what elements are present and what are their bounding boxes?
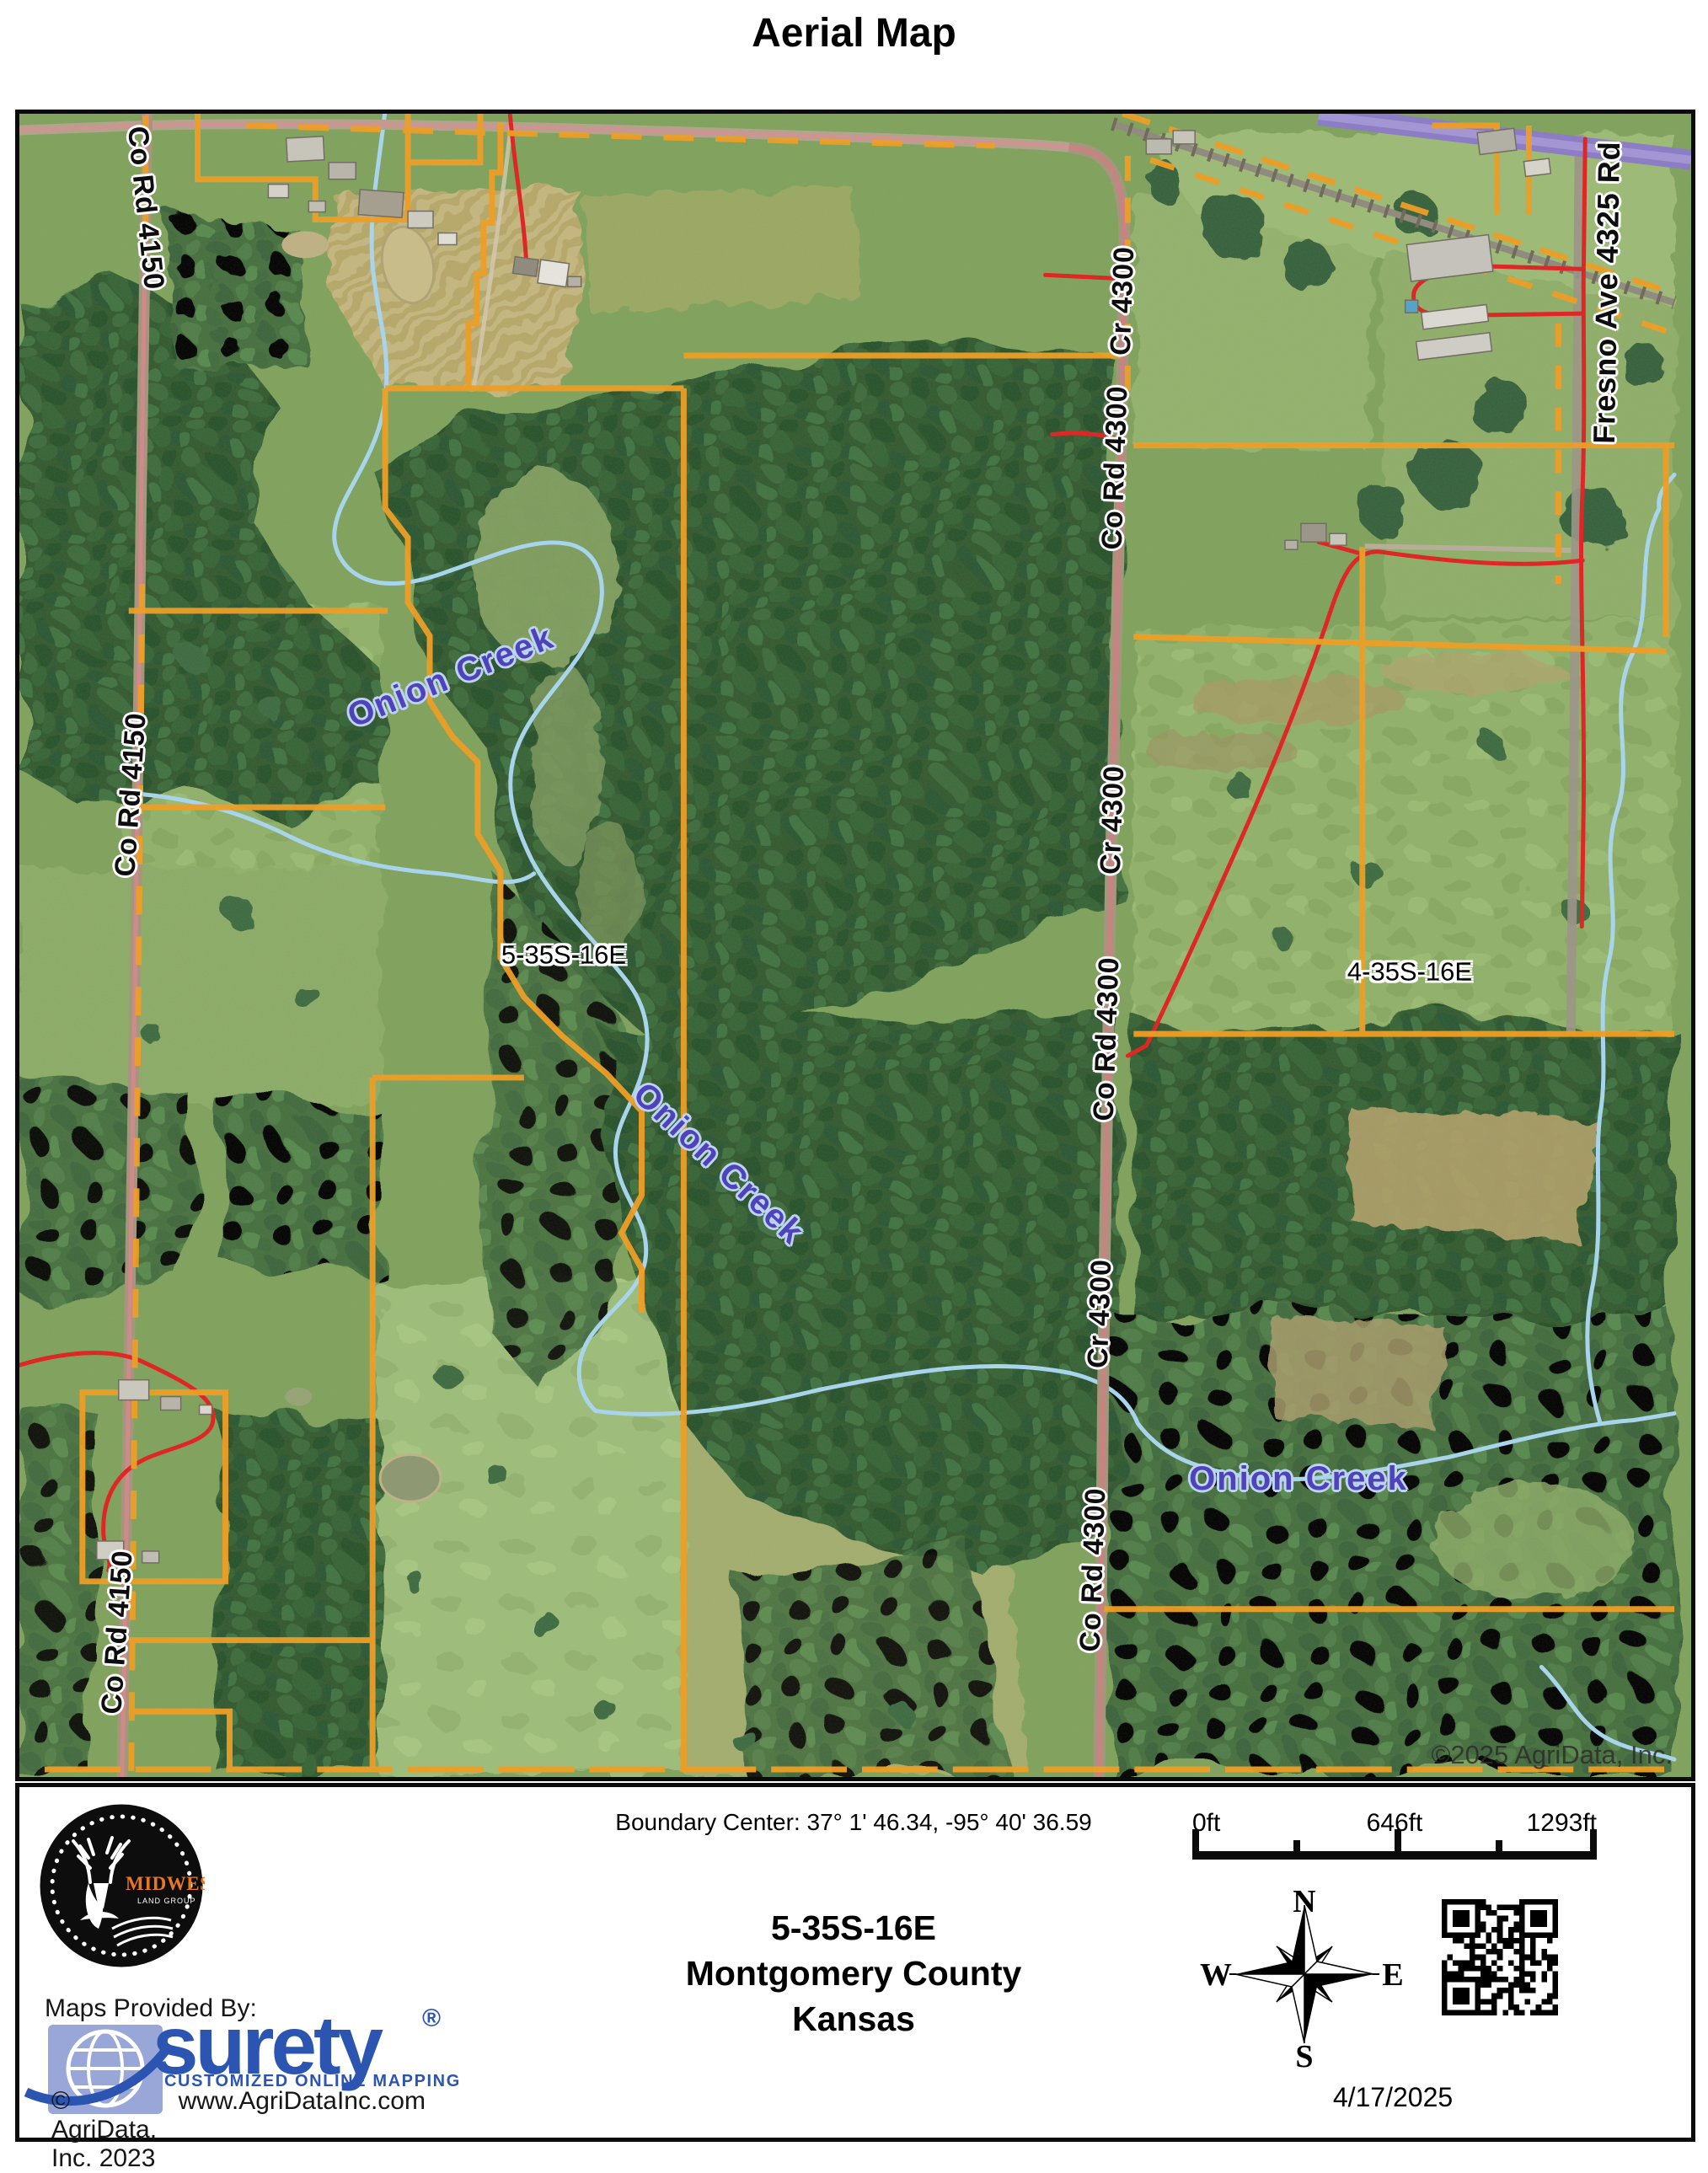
road-label-cr-4300-bottom: Cr 4300 [1084, 1259, 1116, 1369]
scale-tick [1192, 1829, 1199, 1851]
page-title: Aerial Map [0, 10, 1708, 56]
midwest-logo-name: MIDWEST [126, 1873, 205, 1894]
state-name: Kansas [466, 1999, 1241, 2039]
road-label-co-rd-4300-mid: Co Rd 4300 [1090, 956, 1124, 1121]
aerial-imagery [19, 114, 1691, 1777]
scale-bar-line [1192, 1851, 1597, 1860]
footer-center-column: Boundary Center: 37° 1' 46.34, -95° 40' … [466, 1787, 1241, 2138]
section-township-range: 5-35S-16E [466, 1908, 1241, 1948]
road-label-co-rd-4300-top: Co Rd 4300 [1098, 385, 1132, 550]
road-label-cr-4300-top: Cr 4300 [1106, 246, 1139, 356]
parcel-label-5-35s-16e: 5-35S-16E [501, 942, 626, 968]
compass-star [1235, 1905, 1373, 2043]
road-label-fresno-ave: Fresno Ave 4325 Rd [1589, 141, 1625, 444]
agridata-url: www.AgriDataInc.com [179, 2087, 426, 2173]
compass-east-label: E [1382, 1957, 1403, 1993]
agridata-copyright: © AgriData, Inc. 2023 [51, 2087, 179, 2173]
photo-grain-overlay [19, 114, 1691, 1777]
surety-registered-mark: ® [422, 2004, 441, 2033]
scale-label-end: 1293ft [1527, 1809, 1597, 1838]
compass-west-label: W [1200, 1957, 1232, 1993]
aerial-map: Co Rd 4150 Co Rd 4150 Co Rd 4150 Cr 4300… [15, 110, 1695, 1781]
map-date: 4/17/2025 [1266, 2082, 1519, 2113]
midwest-land-group-logo: MIDWEST LAND GROUP [38, 1802, 205, 1969]
scale-tick [1293, 1840, 1300, 1851]
scale-bar: 0ft 646ft 1293ft [1192, 1809, 1597, 1865]
county-name: Montgomery County [466, 1954, 1241, 1994]
scale-tick [1590, 1829, 1597, 1851]
parcel-label-4-35s-16e: 4-35S-16E [1347, 959, 1472, 985]
midwest-logo-subtitle: LAND GROUP [137, 1897, 196, 1905]
road-label-cr-4300-mid: Cr 4300 [1096, 765, 1129, 875]
compass-south-label: S [1295, 2039, 1313, 2074]
creek-label-onion-creek-lower: Onion Creek [1189, 1462, 1408, 1496]
boundary-center-coordinates: Boundary Center: 37° 1' 46.34, -95° 40' … [466, 1809, 1241, 1836]
scale-tick [1496, 1840, 1502, 1851]
qr-code [1442, 1899, 1558, 2015]
map-footer: MIDWEST LAND GROUP Maps Provided By: sur… [15, 1783, 1695, 2142]
road-label-co-rd-4300-bottom: Co Rd 4300 [1076, 1487, 1111, 1652]
map-imagery-copyright: ©2025 AgriData, Inc. [1431, 1740, 1673, 1770]
scale-tick [1395, 1829, 1401, 1851]
compass-rose: N S W E [1191, 1875, 1418, 2077]
